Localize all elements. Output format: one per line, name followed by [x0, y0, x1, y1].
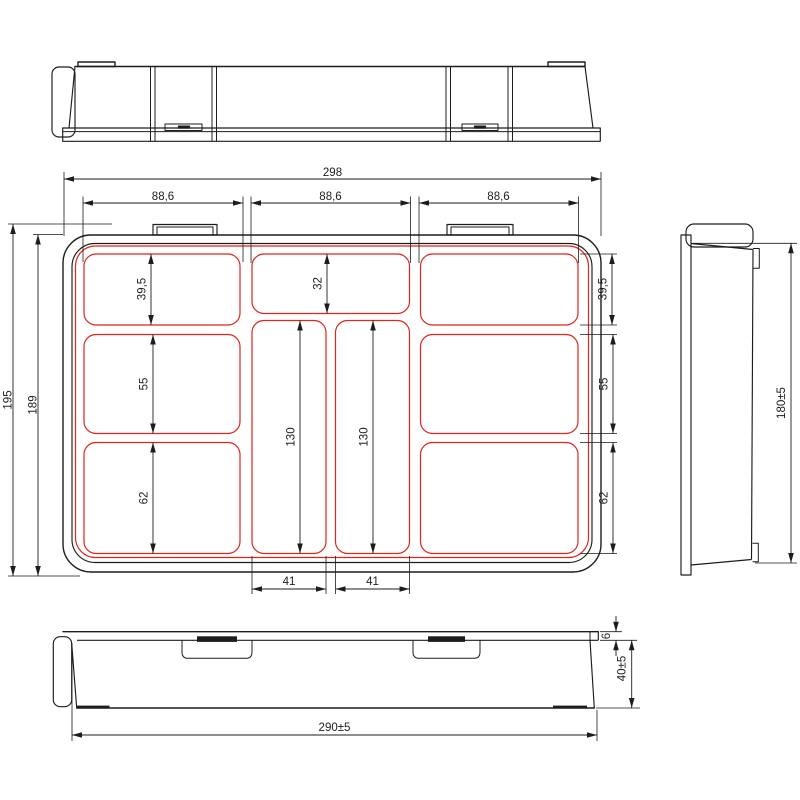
bottom-view	[53, 632, 598, 708]
dim-left-row-2: 55	[139, 378, 151, 391]
dim-section-width-2: 88,6	[319, 191, 341, 203]
tray-rim-outline	[76, 246, 589, 558]
dimension-labels: 298 88,6 88,6 88,6 195 189 39,5 55 62 32…	[3, 167, 788, 734]
ext-left-heights	[8, 224, 112, 576]
dim-section-width-1: 88,6	[152, 191, 174, 203]
bottom-right-slant	[590, 640, 594, 708]
front-latch-right-bar	[474, 126, 486, 129]
dim-right-row-1: 39,5	[598, 278, 610, 300]
dim-side-height: 180±5	[776, 387, 788, 419]
compartment-left-1	[84, 254, 240, 325]
dim-inner-height: 189	[28, 395, 40, 414]
front-left-slant	[69, 67, 75, 129]
side-front-wall	[681, 235, 691, 575]
dim-channel-width-2: 41	[366, 576, 379, 588]
dim-right-row-3: 62	[599, 492, 611, 505]
dim-left-row-1: 39,5	[137, 278, 149, 300]
bottom-latch-pocket-right	[413, 640, 480, 658]
dim-lid-thickness: 6	[601, 633, 613, 639]
side-bottom-slant	[691, 560, 752, 566]
front-view	[52, 62, 600, 141]
plan-inner-body-outline	[72, 244, 592, 563]
bottom-latch-right-bar	[428, 636, 465, 642]
front-divider-lines	[151, 67, 513, 142]
dim-overall-width: 298	[323, 167, 342, 179]
plan-lid-tab-right	[447, 225, 513, 236]
dim-left-row-3: 62	[139, 492, 151, 505]
compartment-right-2	[421, 335, 579, 434]
dim-bottom-width: 290±5	[319, 722, 351, 734]
bottom-foot-left	[77, 706, 110, 709]
compartment-right-3	[421, 443, 579, 554]
body-outlines	[52, 62, 759, 708]
front-base-flange	[63, 128, 601, 141]
bottom-latch-left-bar	[197, 636, 237, 642]
front-right-slant	[585, 67, 593, 129]
dim-channel-height-2: 130	[359, 427, 371, 446]
dim-channel-width-1: 41	[283, 576, 296, 588]
dim-body-depth: 40±5	[617, 656, 629, 682]
compartment-channel-2	[336, 321, 410, 554]
compartment-center-top	[252, 254, 410, 314]
plan-lid-tab-right-inner	[451, 227, 509, 235]
front-latch-left-bar	[178, 126, 190, 129]
plan-lid-tab-left	[153, 225, 217, 236]
plan-lid-tab-left-inner	[157, 227, 213, 235]
ext-channel-widths	[252, 556, 410, 594]
side-back-edge	[752, 250, 754, 560]
bottom-left-slant	[72, 643, 77, 708]
dim-section-width-3: 88,6	[487, 191, 509, 203]
compartment-outlines	[76, 246, 589, 558]
compartment-left-2	[84, 335, 240, 434]
bottom-latch-pocket-left	[182, 640, 252, 658]
dim-total-height: 195	[3, 390, 15, 409]
compartment-left-3	[84, 443, 240, 554]
side-clip-bottom	[753, 543, 759, 561]
front-lid-tab-right	[548, 62, 585, 67]
front-lid-tab-left	[78, 62, 115, 67]
plan-view-outline	[63, 225, 601, 573]
dim-right-row-2: 55	[599, 378, 611, 391]
side-clip-top	[753, 249, 759, 269]
compartment-right-1	[421, 254, 579, 325]
bottom-foot-right	[553, 706, 587, 709]
side-view	[681, 224, 759, 575]
bottom-left-hinge-flap	[53, 637, 71, 707]
ext-overall-width	[64, 172, 601, 236]
technical-drawing-svg: 298 88,6 88,6 88,6 195 189 39,5 55 62 32…	[0, 0, 800, 800]
dimension-lines	[8, 172, 797, 741]
drawing-canvas: 298 88,6 88,6 88,6 195 189 39,5 55 62 32…	[0, 0, 800, 800]
dim-channel-height-1: 130	[286, 427, 298, 446]
dim-center-top-height: 32	[313, 277, 325, 290]
